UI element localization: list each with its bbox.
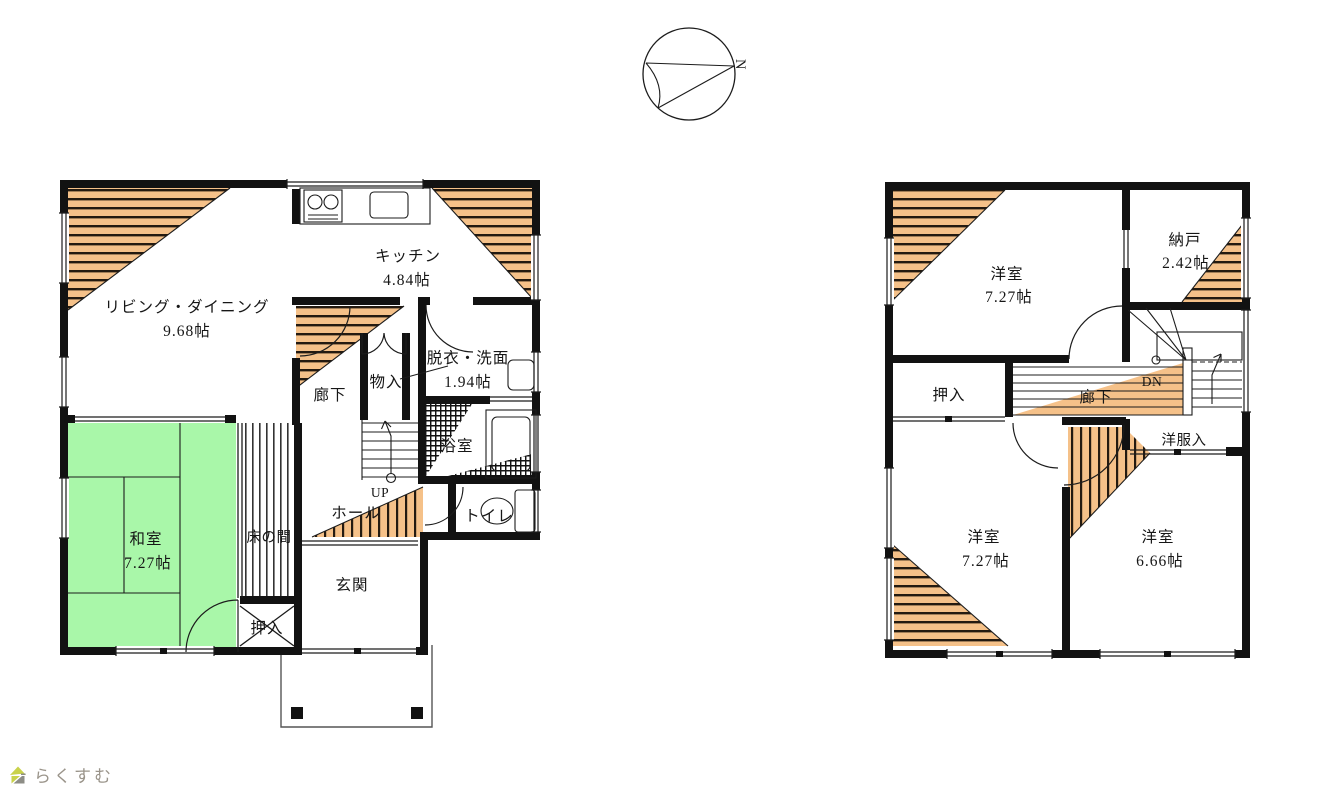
label-storage1: 物入 <box>369 373 402 391</box>
label-washroom-area: 1.94帖 <box>444 373 492 391</box>
label-storeroom-area: 2.42帖 <box>1162 254 1210 272</box>
floor1-plan: リビング・ダイニング 9.68帖 キッチン 4.84帖 廊下 物入 脱衣・洗面 … <box>48 168 558 748</box>
label-bedroom-nw-area: 7.27帖 <box>985 288 1033 306</box>
compass-north-label: N <box>732 59 748 70</box>
label-entrance: 玄関 <box>335 576 368 594</box>
label-bedroom-nw: 洋室 <box>990 265 1023 283</box>
washbasin-icon <box>508 360 534 390</box>
label-stairs-up: UP <box>371 485 389 500</box>
label-tokonoma: 床の間 <box>247 529 292 546</box>
porch-post-right <box>411 707 423 719</box>
label-bedroom-sw-area: 7.27帖 <box>962 552 1010 570</box>
label-kitchen: キッチン <box>375 248 441 265</box>
label-closet1: 押入 <box>250 619 283 637</box>
porch-outline <box>281 645 432 727</box>
compass-needle <box>646 63 734 108</box>
logo-text: らくすむ <box>34 762 114 787</box>
label-living-area: 9.68帖 <box>163 322 211 340</box>
site-logo: らくすむ <box>8 762 114 787</box>
label-toilet: トイレ <box>464 508 514 525</box>
label-bathroom: 浴室 <box>440 437 473 455</box>
floor-plan-page: { "page": { "logo": "らくすむ", "background"… <box>0 0 1322 792</box>
kitchen-sink-icon <box>370 192 408 218</box>
floor1-stairs <box>362 420 418 483</box>
label-bedroom-se: 洋室 <box>1141 528 1174 546</box>
tokonoma-fill <box>240 423 296 598</box>
label-corridor2: 廊下 <box>1079 388 1112 406</box>
porch-post-left <box>291 707 303 719</box>
label-corridor1: 廊下 <box>313 386 346 404</box>
house-icon <box>8 765 28 785</box>
label-tatami: 和室 <box>129 530 162 548</box>
label-storeroom: 納戸 <box>1168 231 1201 249</box>
label-kitchen-area: 4.84帖 <box>383 271 431 289</box>
kitchen-counter <box>300 188 430 224</box>
bathroom-hatch-2 <box>448 454 532 476</box>
label-tatami-area: 7.27帖 <box>124 554 172 572</box>
label-living: リビング・ダイニング <box>104 298 269 316</box>
label-wardrobe: 洋服入 <box>1162 432 1207 449</box>
label-stairs-down: DN <box>1142 374 1163 389</box>
label-bedroom-sw: 洋室 <box>967 528 1000 546</box>
compass: N <box>628 16 762 128</box>
label-bedroom-se-area: 6.66帖 <box>1136 552 1184 570</box>
floor2-plan: 洋室 7.27帖 納戸 2.42帖 押入 廊下 DN 洋服入 洋室 7.27帖 … <box>878 168 1258 668</box>
label-washroom: 脱衣・洗面 <box>427 349 510 367</box>
label-closet2: 押入 <box>932 386 965 404</box>
label-hall: ホール <box>331 505 381 522</box>
compass-circle <box>643 28 735 120</box>
